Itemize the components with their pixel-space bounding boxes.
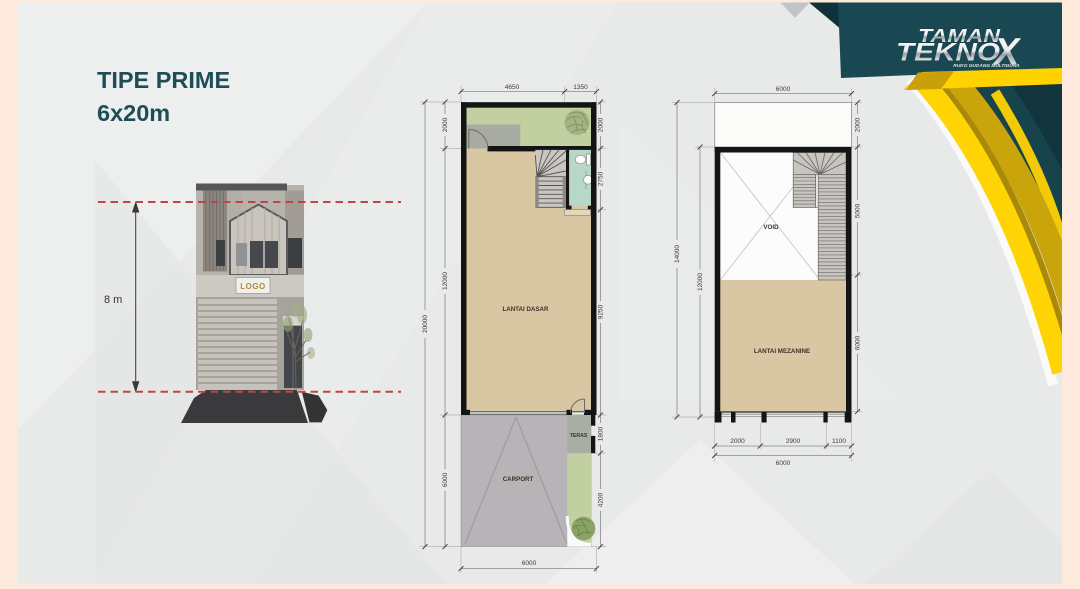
- svg-text:9250: 9250: [598, 304, 605, 319]
- svg-text:2900: 2900: [786, 438, 801, 445]
- svg-text:4200: 4200: [598, 492, 605, 507]
- svg-text:TERAS: TERAS: [570, 433, 588, 439]
- svg-text:6000: 6000: [776, 460, 791, 467]
- svg-text:1350: 1350: [573, 84, 588, 91]
- svg-text:TIPE PRIME: TIPE PRIME: [97, 67, 230, 93]
- svg-text:20000: 20000: [422, 315, 429, 333]
- svg-text:12000: 12000: [442, 272, 449, 290]
- svg-text:2000: 2000: [598, 117, 605, 132]
- svg-text:6x20m: 6x20m: [97, 100, 170, 126]
- svg-text:14000: 14000: [674, 245, 681, 263]
- svg-text:6000: 6000: [522, 560, 537, 567]
- svg-text:LANTAI MEZANINE: LANTAI MEZANINE: [754, 348, 810, 355]
- svg-text:VOID: VOID: [763, 224, 779, 231]
- svg-text:2000: 2000: [442, 117, 449, 132]
- svg-text:4650: 4650: [505, 84, 520, 91]
- svg-text:TEKNO: TEKNO: [896, 39, 1001, 67]
- svg-text:1100: 1100: [832, 438, 846, 445]
- svg-text:LOGO: LOGO: [240, 282, 266, 291]
- svg-text:RUKO GUDANG MULTIGUNA: RUKO GUDANG MULTIGUNA: [953, 63, 1020, 69]
- svg-text:6000: 6000: [776, 86, 791, 93]
- svg-text:1800: 1800: [598, 426, 605, 441]
- svg-text:LANTAI DASAR: LANTAI DASAR: [503, 306, 549, 313]
- svg-text:2000: 2000: [855, 117, 862, 132]
- svg-text:2000: 2000: [730, 438, 745, 445]
- svg-text:6000: 6000: [442, 472, 449, 487]
- svg-text:2750: 2750: [598, 171, 605, 186]
- svg-text:CARPORT: CARPORT: [503, 476, 534, 483]
- svg-text:6000: 6000: [855, 335, 862, 350]
- svg-text:5000: 5000: [855, 203, 862, 218]
- svg-text:8 m: 8 m: [104, 294, 122, 306]
- svg-text:12000: 12000: [697, 273, 704, 291]
